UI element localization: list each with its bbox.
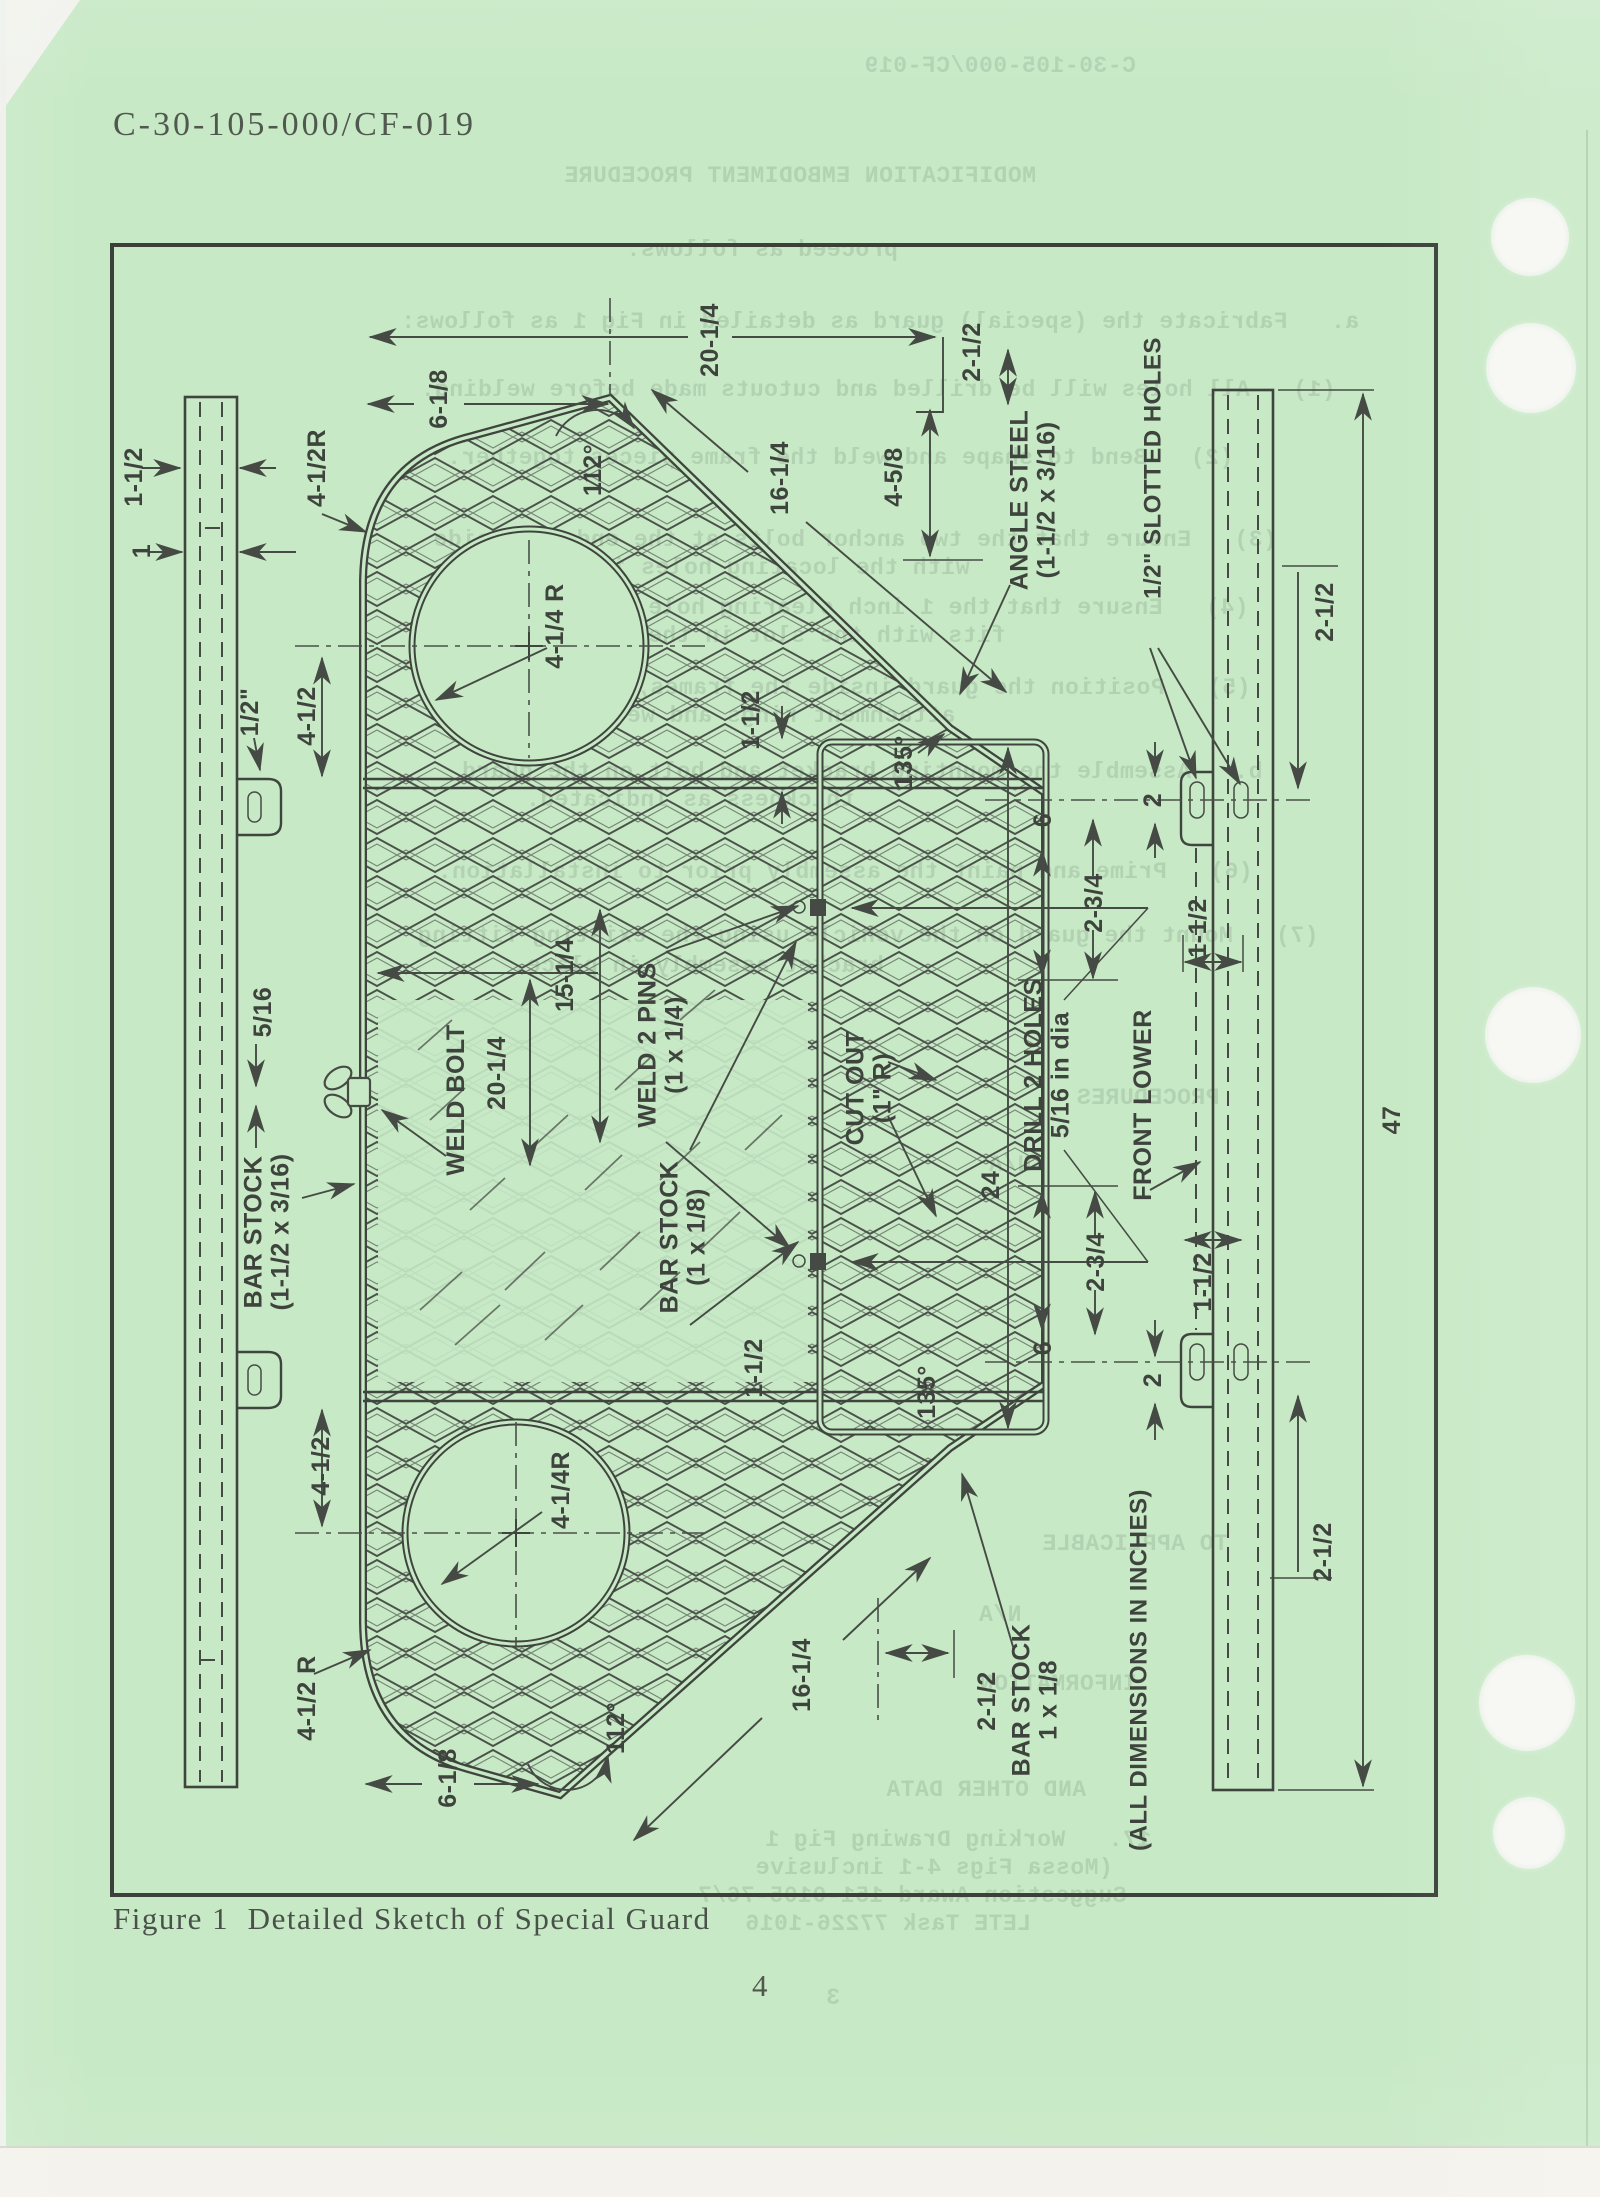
dim-label-line: 135° — [890, 735, 918, 789]
dim-label: 135° — [913, 1365, 941, 1419]
dim-label-line: DRILL 2 HOLES — [1019, 978, 1047, 1172]
dim-label-line: 6 — [1029, 1341, 1057, 1355]
dim-label: BAR STOCK(1-1/2 x 3/16) — [239, 1153, 294, 1310]
dim-label-line: 6 — [1029, 813, 1057, 827]
dim-label: 2 — [1139, 1373, 1167, 1387]
figure-drawing: 1-1/214-1/2R1/2"4-1/26-1/8112°20-1/416-1… — [0, 0, 1600, 2197]
dim-label: 1-1/2 — [737, 690, 765, 749]
dim-label-line: (1 x 1/4) — [660, 996, 688, 1094]
dim-label-line: (1" R) — [868, 1053, 896, 1123]
dim-label: 4-1/4R — [547, 1451, 575, 1529]
dim-label: 20-1/4 — [696, 303, 724, 377]
dim-label-line: 15-1/4 — [551, 938, 579, 1012]
dim-label: 1-1/2 — [740, 1338, 768, 1397]
page-right-edge — [1586, 130, 1588, 2150]
dim-label-line: 4-1/2R — [303, 429, 331, 507]
dim-label-line: 2 — [1139, 793, 1167, 807]
dim-label-line: 135° — [913, 1365, 941, 1419]
slot-tab — [1181, 772, 1213, 845]
dim-label: 6-1/8 — [425, 369, 453, 428]
dim-label-line: 24 — [977, 1171, 1005, 1200]
dim-label: 6 — [1029, 1341, 1057, 1355]
dim-label-line: 2-1/2 — [1311, 582, 1339, 641]
dim-label: 24 — [977, 1171, 1005, 1200]
left-bar-stock — [185, 397, 281, 1787]
dim-label-line: 1-1/2 — [737, 690, 765, 749]
dim-label-line: CUT OUT — [841, 1031, 869, 1146]
slot-tab — [237, 779, 281, 835]
punch-hole — [1488, 325, 1574, 411]
dim-label: 4-1/2 R — [293, 1655, 321, 1740]
dim-label: ANGLE STEEL(1-1/2 x 3/16) — [1005, 410, 1060, 591]
dim-label-line: 2 — [1139, 1373, 1167, 1387]
dim-label: 2-1/2 — [973, 1671, 1001, 1730]
document-code: C-30-105-000/CF-019 — [113, 106, 476, 144]
dim-label-line: 4-1/4R — [547, 1451, 575, 1529]
dim-label: 1/2" SLOTTED HOLES — [1139, 337, 1166, 599]
right-angle-rail — [1181, 390, 1273, 1790]
dim-label-line: 16-1/4 — [766, 441, 794, 515]
dim-label-line: 1-1/2 — [740, 1338, 768, 1397]
dim-label-line: 20-1/4 — [696, 303, 724, 377]
slotted-hole — [248, 792, 261, 822]
dim-label-line: 1/2" SLOTTED HOLES — [1139, 337, 1166, 599]
dim-label-line: 1 x 1/8 — [1034, 1660, 1062, 1740]
dim-label-line: 4-1/2 — [307, 1436, 335, 1495]
dim-label: 1-1/2 — [1189, 1252, 1217, 1311]
dim-label: 1/2" — [236, 688, 264, 737]
dim-label-line: (ALL DIMENSIONS IN INCHES) — [1125, 1489, 1152, 1851]
dim-label-line: 4-1/2 — [293, 686, 321, 745]
dim-label: 5/16 — [249, 987, 277, 1038]
dim-label-line: FRONT LOWER — [1129, 1009, 1157, 1201]
dim-label-line: 112° — [579, 444, 607, 496]
dim-label-line: BAR STOCK — [239, 1156, 267, 1309]
dim-label-line: 2-3/4 — [1080, 873, 1108, 932]
dim-label-line: 1-1/2 — [1184, 898, 1212, 957]
dim-label-line: 6-1/8 — [425, 369, 453, 428]
dim-label: FRONT LOWER — [1129, 1009, 1157, 1201]
dim-label-line: 5/16 in dia — [1046, 1011, 1074, 1138]
weld-pin — [810, 899, 826, 916]
weld-pin — [810, 1253, 826, 1270]
dim-label: 4-1/2R — [303, 429, 331, 507]
dim-label-line: 1-1/2 — [1189, 1252, 1217, 1311]
dim-label: 135° — [890, 735, 918, 789]
dim-label: 4-5/8 — [880, 447, 908, 506]
dim-label: 1-1/2 — [120, 447, 148, 506]
dim-label: 16-1/4 — [766, 441, 794, 515]
page-number: 4 — [752, 1968, 768, 2004]
dim-label-line: 16-1/4 — [788, 1638, 816, 1712]
dim-label-line: 2-1/2 — [973, 1671, 1001, 1730]
dim-label: 112° — [602, 1702, 630, 1754]
dim-label: 1 — [128, 544, 156, 558]
figure-caption: Figure 1 Detailed Sketch of Special Guar… — [113, 1901, 711, 1937]
dim-label-line: 5/16 — [249, 987, 277, 1038]
dim-label-line: (1-1/2 x 3/16) — [1032, 421, 1060, 578]
dim-label: 2-1/2 — [1309, 1522, 1337, 1581]
punch-hole — [1487, 989, 1579, 1081]
dim-label-line: 2-1/2 — [1309, 1522, 1337, 1581]
dim-label: WELD BOLT — [442, 1024, 470, 1175]
dim-label-line: 1/2" — [236, 688, 264, 737]
dim-label: 6 — [1029, 813, 1057, 827]
slot-tab — [237, 1352, 281, 1408]
dim-label: 1-1/2 — [1184, 898, 1212, 957]
dim-label: 2 — [1139, 793, 1167, 807]
dim-label: 47 — [1378, 1106, 1406, 1135]
dim-label: 2-1/2 — [1311, 582, 1339, 641]
dim-label: 4-1/2 — [307, 1436, 335, 1495]
punch-hole — [1495, 1799, 1563, 1867]
dim-label: 2-1/2 — [958, 322, 986, 381]
dim-label: BAR STOCK1 x 1/8 — [1007, 1624, 1062, 1777]
dim-label: 6-1/8 — [434, 1748, 462, 1807]
dim-label-line: WELD BOLT — [442, 1024, 470, 1175]
dim-label: 16-1/4 — [788, 1638, 816, 1712]
dim-label-line: 2-3/4 — [1082, 1232, 1110, 1291]
dim-label-line: 2-1/2 — [958, 322, 986, 381]
dim-label: 2-3/4 — [1080, 873, 1108, 932]
dim-label-line: 4-1/2 R — [293, 1655, 321, 1740]
punch-hole — [1481, 1657, 1573, 1749]
dim-label-line: 20-1/4 — [483, 1036, 511, 1110]
dim-label-line: 4-1/4 R — [541, 583, 569, 668]
dim-label: (ALL DIMENSIONS IN INCHES) — [1125, 1489, 1152, 1851]
dim-label-line: BAR STOCK — [1007, 1624, 1035, 1777]
dim-label-line: 6-1/8 — [434, 1748, 462, 1807]
dim-label: 112° — [579, 444, 607, 496]
dim-label-line: 112° — [602, 1702, 630, 1754]
slotted-hole — [248, 1365, 261, 1395]
dim-label-line: WELD 2 PINS — [633, 962, 661, 1127]
dim-label-line: (1 x 1/8) — [682, 1188, 710, 1286]
scan-bottom-margin — [0, 2146, 1600, 2197]
punch-hole — [1493, 200, 1567, 274]
dim-label: 4-1/4 R — [541, 583, 569, 668]
slot-tab — [1181, 1334, 1213, 1407]
dim-label-line: 1-1/2 — [120, 447, 148, 506]
scanned-document-page: C-30-105-000/CF-019MODIFICATION EMBODIME… — [0, 0, 1600, 2197]
dim-label: 15-1/4 — [551, 938, 579, 1012]
dim-label-line: 4-5/8 — [880, 447, 908, 506]
dim-label-line: (1-1/2 x 3/16) — [266, 1153, 294, 1310]
dim-label-line: 1 — [128, 544, 156, 558]
page-left-edge — [0, 0, 6, 2197]
dim-label-line: ANGLE STEEL — [1005, 410, 1033, 591]
dim-label: 4-1/2 — [293, 686, 321, 745]
dim-label-line: BAR STOCK — [655, 1161, 683, 1314]
dim-label: DRILL 2 HOLES5/16 in dia — [1019, 978, 1074, 1172]
dim-label: 20-1/4 — [483, 1036, 511, 1110]
dim-label-line: 47 — [1378, 1106, 1406, 1135]
guard-panel — [321, 398, 1046, 1795]
dim-label: 2-3/4 — [1082, 1232, 1110, 1291]
